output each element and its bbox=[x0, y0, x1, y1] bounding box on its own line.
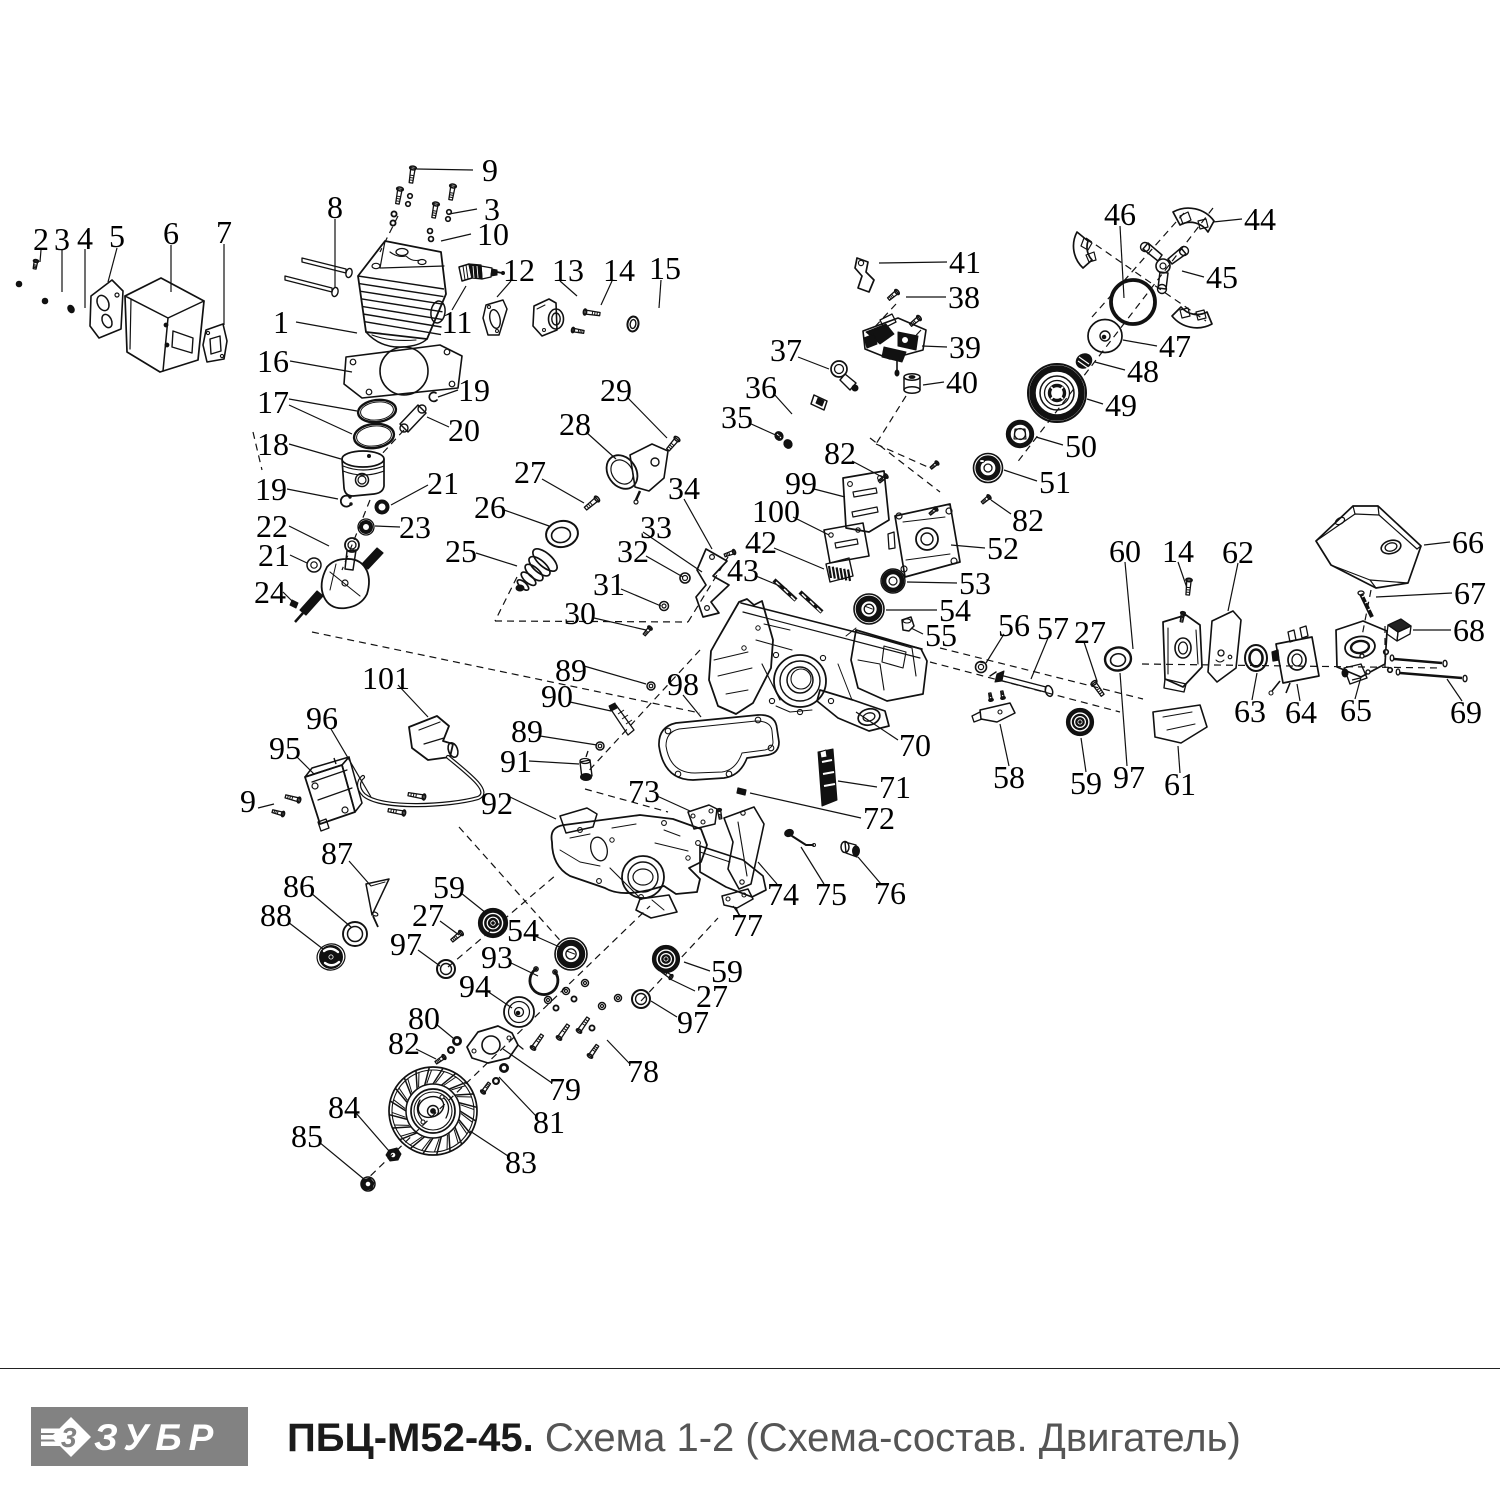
svg-text:45: 45 bbox=[1206, 259, 1238, 295]
svg-text:14: 14 bbox=[603, 252, 635, 288]
svg-text:32: 32 bbox=[617, 533, 649, 569]
svg-text:87: 87 bbox=[321, 835, 353, 871]
svg-text:50: 50 bbox=[1065, 428, 1097, 464]
svg-text:97: 97 bbox=[390, 926, 422, 962]
svg-text:21: 21 bbox=[258, 537, 290, 573]
svg-text:65: 65 bbox=[1340, 692, 1372, 728]
svg-text:59: 59 bbox=[1070, 765, 1102, 801]
svg-text:36: 36 bbox=[745, 369, 777, 405]
svg-text:39: 39 bbox=[949, 329, 981, 365]
svg-text:76: 76 bbox=[874, 875, 906, 911]
svg-text:30: 30 bbox=[564, 595, 596, 631]
svg-text:82: 82 bbox=[824, 435, 856, 471]
svg-text:37: 37 bbox=[770, 332, 802, 368]
svg-text:55: 55 bbox=[925, 617, 957, 653]
svg-text:34: 34 bbox=[668, 470, 700, 506]
svg-text:84: 84 bbox=[328, 1089, 360, 1125]
svg-text:73: 73 bbox=[628, 773, 660, 809]
svg-text:85: 85 bbox=[291, 1118, 323, 1154]
svg-text:14: 14 bbox=[1162, 533, 1194, 569]
svg-text:43: 43 bbox=[727, 552, 759, 588]
svg-text:82: 82 bbox=[388, 1025, 420, 1061]
svg-text:18: 18 bbox=[257, 426, 289, 462]
svg-text:7: 7 bbox=[216, 214, 232, 250]
svg-text:44: 44 bbox=[1244, 201, 1276, 237]
svg-text:64: 64 bbox=[1285, 694, 1317, 730]
svg-text:12: 12 bbox=[503, 252, 535, 288]
svg-text:46: 46 bbox=[1104, 196, 1136, 232]
svg-text:67: 67 bbox=[1454, 575, 1486, 611]
svg-text:17: 17 bbox=[257, 384, 289, 420]
svg-text:81: 81 bbox=[533, 1104, 565, 1140]
svg-text:25: 25 bbox=[445, 533, 477, 569]
svg-text:78: 78 bbox=[627, 1053, 659, 1089]
svg-text:6: 6 bbox=[163, 215, 179, 251]
svg-text:92: 92 bbox=[481, 785, 513, 821]
svg-text:48: 48 bbox=[1127, 353, 1159, 389]
svg-text:60: 60 bbox=[1109, 533, 1141, 569]
svg-text:91: 91 bbox=[500, 743, 532, 779]
svg-text:19: 19 bbox=[255, 471, 287, 507]
svg-text:63: 63 bbox=[1234, 693, 1266, 729]
svg-text:88: 88 bbox=[260, 897, 292, 933]
svg-text:58: 58 bbox=[993, 759, 1025, 795]
svg-text:4: 4 bbox=[77, 220, 93, 256]
svg-text:72: 72 bbox=[863, 800, 895, 836]
svg-text:47: 47 bbox=[1159, 328, 1191, 364]
svg-text:28: 28 bbox=[559, 406, 591, 442]
svg-text:79: 79 bbox=[549, 1071, 581, 1107]
svg-text:24: 24 bbox=[254, 574, 286, 610]
svg-text:ЗУБР: ЗУБР bbox=[94, 1417, 220, 1458]
svg-text:49: 49 bbox=[1105, 387, 1137, 423]
svg-text:74: 74 bbox=[767, 876, 799, 912]
svg-text:52: 52 bbox=[987, 530, 1019, 566]
svg-text:10: 10 bbox=[477, 216, 509, 252]
svg-text:27: 27 bbox=[1074, 614, 1106, 650]
svg-text:27: 27 bbox=[514, 454, 546, 490]
svg-text:2: 2 bbox=[33, 221, 49, 257]
svg-text:23: 23 bbox=[399, 509, 431, 545]
svg-text:57: 57 bbox=[1037, 610, 1069, 646]
svg-text:66: 66 bbox=[1452, 524, 1484, 560]
svg-text:21: 21 bbox=[427, 465, 459, 501]
svg-text:70: 70 bbox=[899, 727, 931, 763]
svg-text:75: 75 bbox=[815, 876, 847, 912]
svg-text:96: 96 bbox=[306, 700, 338, 736]
svg-text:38: 38 bbox=[948, 279, 980, 315]
svg-text:61: 61 bbox=[1164, 766, 1196, 802]
svg-text:5: 5 bbox=[109, 218, 125, 254]
svg-text:31: 31 bbox=[593, 566, 625, 602]
svg-text:101: 101 bbox=[362, 660, 410, 696]
svg-text:40: 40 bbox=[946, 364, 978, 400]
svg-text:83: 83 bbox=[505, 1144, 537, 1180]
svg-text:77: 77 bbox=[731, 907, 763, 943]
svg-text:97: 97 bbox=[1113, 759, 1145, 795]
svg-text:3: 3 bbox=[54, 221, 70, 257]
svg-text:90: 90 bbox=[541, 678, 573, 714]
svg-text:20: 20 bbox=[448, 412, 480, 448]
svg-text:8: 8 bbox=[327, 189, 343, 225]
svg-text:62: 62 bbox=[1222, 534, 1254, 570]
svg-text:94: 94 bbox=[459, 968, 491, 1004]
svg-text:95: 95 bbox=[269, 730, 301, 766]
svg-text:56: 56 bbox=[998, 607, 1030, 643]
svg-text:97: 97 bbox=[677, 1004, 709, 1040]
svg-text:26: 26 bbox=[474, 489, 506, 525]
svg-text:15: 15 bbox=[649, 250, 681, 286]
svg-text:9: 9 bbox=[240, 783, 256, 819]
svg-text:3: 3 bbox=[61, 1422, 77, 1453]
svg-text:51: 51 bbox=[1039, 464, 1071, 500]
svg-text:69: 69 bbox=[1450, 694, 1482, 730]
svg-text:19: 19 bbox=[458, 372, 490, 408]
svg-text:29: 29 bbox=[600, 372, 632, 408]
svg-text:9: 9 bbox=[482, 152, 498, 188]
svg-text:16: 16 bbox=[257, 343, 289, 379]
svg-text:1: 1 bbox=[273, 304, 289, 340]
svg-text:11: 11 bbox=[442, 304, 473, 340]
svg-text:13: 13 bbox=[552, 252, 584, 288]
svg-text:98: 98 bbox=[667, 666, 699, 702]
svg-text:68: 68 bbox=[1453, 612, 1485, 648]
svg-text:41: 41 bbox=[949, 244, 981, 280]
